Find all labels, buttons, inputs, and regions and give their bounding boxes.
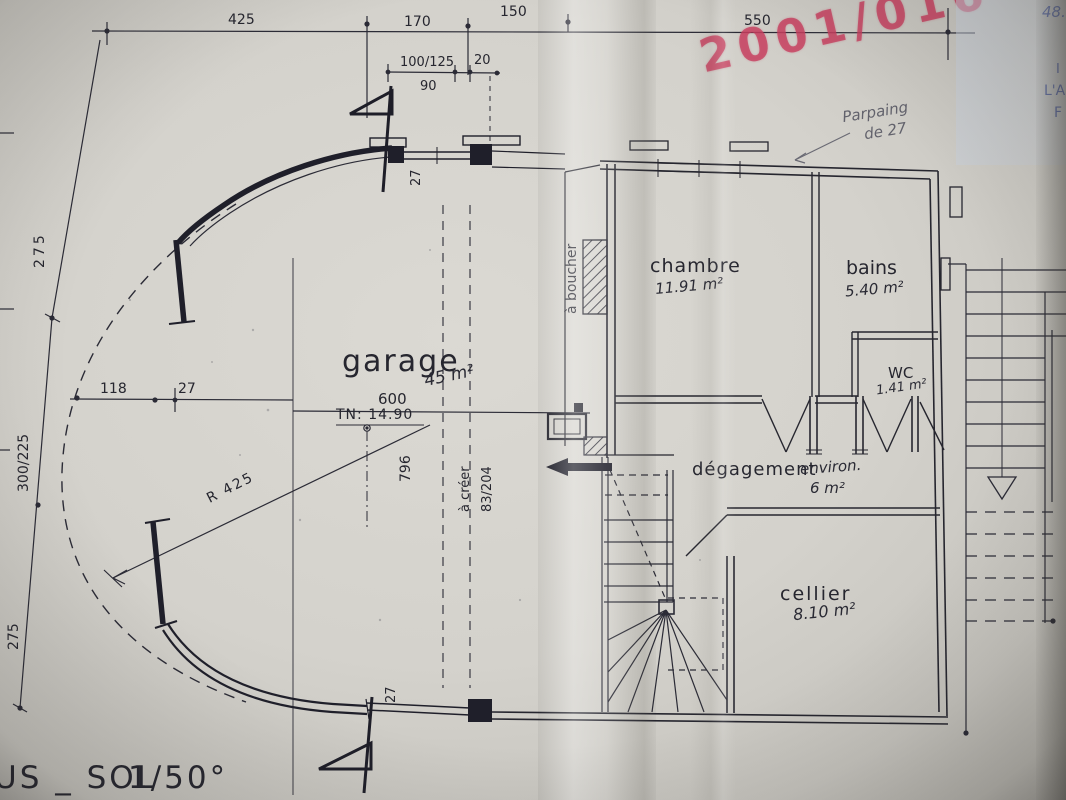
house-walls: [492, 141, 962, 724]
dimension-lines: [0, 8, 975, 795]
a-creer-label: à créer: [458, 466, 473, 512]
a-boucher-label: à boucher: [564, 244, 580, 314]
plan-scale: 1/50°: [128, 760, 228, 796]
tn-level-label: TN: 14.90: [336, 407, 413, 423]
dim-600-label: 600: [378, 390, 407, 408]
floor-plan-photo: 425 170 150 550 100/125 20 90 2001/016 4…: [0, 0, 1066, 800]
corner-note-f: F: [1054, 105, 1062, 121]
corner-note-48: 48.: [1042, 3, 1066, 21]
room-chambre-label: chambre: [650, 255, 741, 277]
room-degagement-label: dégagement: [692, 459, 817, 480]
dim-27-top-label: 27: [409, 169, 424, 186]
plan-linework: [0, 0, 1066, 800]
dim-275-top-label: 275: [32, 232, 48, 268]
dim-275-bottom-label: 275: [6, 623, 22, 650]
dim-90-label: 90: [420, 79, 437, 94]
dim-425-label: 425: [228, 12, 255, 28]
room-degagement-area: 6 m²: [810, 479, 845, 497]
room-bains-label: bains: [846, 257, 897, 279]
corner-note-i: I: [1056, 62, 1060, 77]
section-markers: [319, 86, 392, 793]
dim-27-mid-label: 27: [178, 381, 196, 397]
dim-83-204-label: 83/204: [480, 466, 495, 512]
corner-note-la: L'A: [1044, 83, 1065, 99]
exterior-staircase: [948, 258, 1066, 735]
garage-walls: [145, 136, 565, 722]
dim-796-label: 796: [398, 455, 414, 482]
dim-170-label: 170: [404, 14, 431, 30]
dim-150-label: 150: [500, 4, 527, 20]
leader-arrows: [104, 133, 850, 587]
dim-118-label: 118: [100, 381, 127, 397]
dim-27-bottom-label: 27: [384, 686, 399, 703]
dim-20-label: 20: [474, 53, 491, 68]
dim-100-125-label: 100/125: [400, 55, 454, 70]
dim-300-225-label: 300/225: [16, 434, 32, 492]
